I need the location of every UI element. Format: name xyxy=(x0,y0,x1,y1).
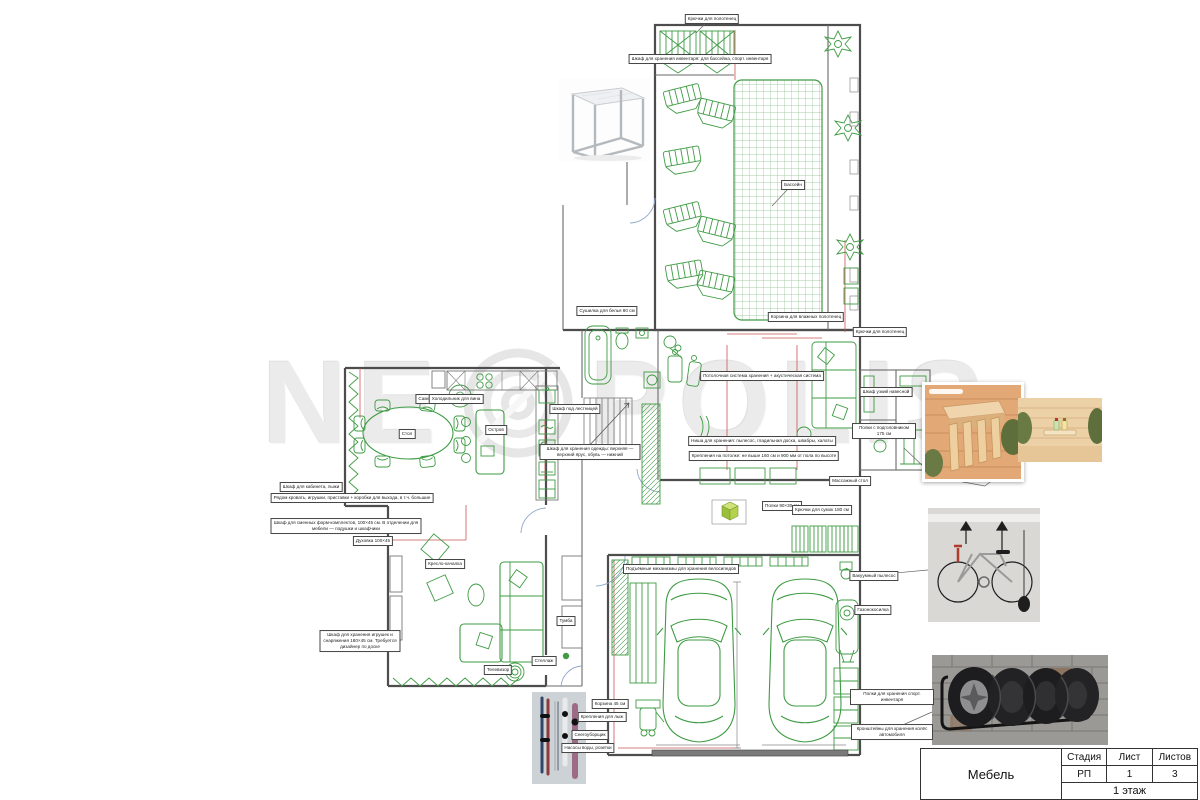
floor-label: 1 этаж xyxy=(1062,783,1197,799)
metal-frame-side-table-photo xyxy=(558,78,650,162)
stairs xyxy=(584,398,632,452)
gym-zone xyxy=(664,336,856,484)
stage-value: РП xyxy=(1062,766,1107,782)
garage xyxy=(612,557,858,756)
tire-wall-rack-photo xyxy=(932,655,1108,745)
sauna-shelf-aroma-oils-photo xyxy=(1018,398,1102,462)
sheet-title: Мебель xyxy=(921,749,1062,799)
sheet-header: Лист xyxy=(1107,749,1152,765)
ski-snowboard-wall-rack-photo xyxy=(532,692,586,784)
dining-area xyxy=(349,372,471,498)
living-room xyxy=(390,534,582,686)
garage-door xyxy=(652,750,848,756)
sauna-headrest-photo xyxy=(922,382,1024,482)
pool-area xyxy=(660,31,863,320)
title-block: Мебель Стадия Лист Листов РП 1 3 1 этаж xyxy=(920,748,1198,800)
stage-header: Стадия xyxy=(1062,749,1107,765)
bicycle-ceiling-hoist-photo xyxy=(928,508,1040,622)
car-symbol-left xyxy=(657,579,741,742)
sheets-header: Листов xyxy=(1153,749,1197,765)
hall-zone xyxy=(712,500,858,552)
sheet-value: 1 xyxy=(1107,766,1152,782)
sheets-value: 3 xyxy=(1153,766,1197,782)
kitchen xyxy=(432,371,558,500)
drawing-sheet: NE POLIS xyxy=(0,0,1200,800)
